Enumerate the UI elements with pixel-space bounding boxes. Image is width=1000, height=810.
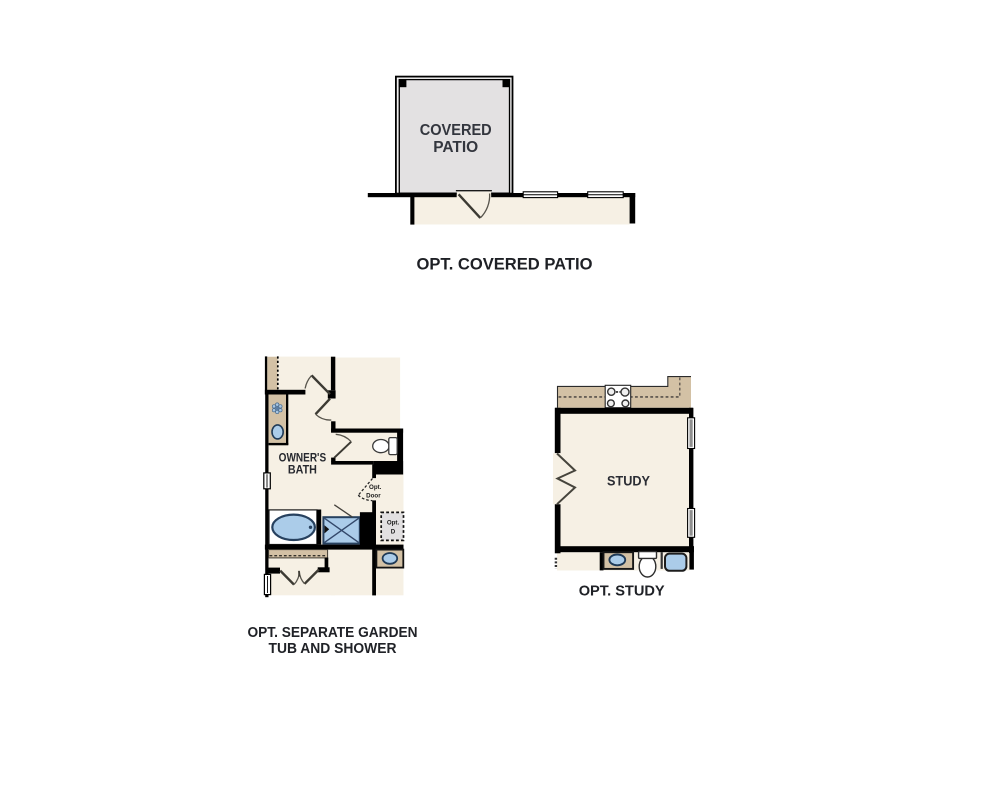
svg-text:OPT. STUDY: OPT. STUDY	[579, 584, 665, 600]
svg-text:STUDY: STUDY	[607, 473, 650, 488]
svg-text:PATIO: PATIO	[433, 139, 478, 156]
svg-text:BATH: BATH	[288, 462, 317, 476]
svg-text:COVERED: COVERED	[420, 122, 492, 139]
svg-text:D: D	[391, 529, 396, 536]
svg-text:OPT. COVERED PATIO: OPT. COVERED PATIO	[417, 256, 593, 274]
svg-text:Opt.: Opt.	[387, 520, 400, 527]
svg-text:OPT. SEPARATE GARDEN: OPT. SEPARATE GARDEN	[248, 625, 418, 641]
svg-text:Door: Door	[366, 492, 381, 499]
svg-text:Opt.: Opt.	[369, 484, 382, 491]
svg-text:TUB AND SHOWER: TUB AND SHOWER	[269, 641, 398, 657]
